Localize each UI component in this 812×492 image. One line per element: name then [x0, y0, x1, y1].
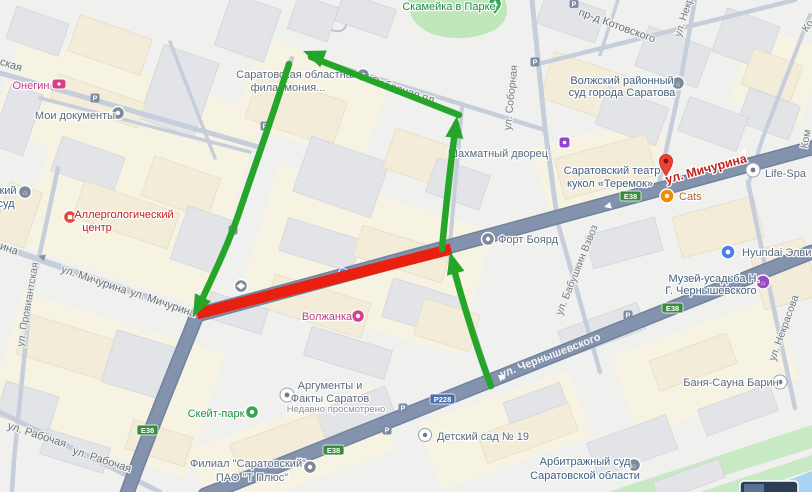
svg-text:кукол «Теремок»: кукол «Теремок»: [567, 178, 653, 190]
cafe-cats-icon[interactable]: [660, 189, 674, 203]
svg-text:Р228: Р228: [434, 395, 452, 404]
skatepark-icon[interactable]: [246, 406, 259, 419]
svg-text:Аллергологический: Аллергологический: [74, 209, 173, 221]
photo-thumbnail[interactable]: [740, 481, 798, 492]
svg-text:P: P: [93, 96, 98, 103]
svg-text:E38: E38: [624, 192, 637, 201]
poi-label-cats[interactable]: Cats: [679, 191, 702, 203]
svg-text:Саратовской области: Саратовской области: [530, 470, 640, 482]
poi-label-park-bench[interactable]: Скамейка в Парке: [402, 1, 495, 13]
parking-icon[interactable]: P: [531, 58, 540, 67]
svg-text:P: P: [572, 2, 577, 9]
svg-text:Г. Чернышевского: Г. Чернышевского: [665, 285, 756, 297]
svg-text:E38: E38: [666, 304, 679, 313]
svg-text:⌂: ⌂: [761, 280, 765, 287]
svg-text:Волжский районный: Волжский районный: [570, 75, 673, 87]
svg-text:центр: центр: [82, 222, 112, 234]
poi-label-court-clipped[interactable]: кий суд: [0, 185, 17, 210]
route-badge-e38: E38: [620, 191, 641, 201]
shop-volzhanka-icon[interactable]: [352, 310, 365, 323]
poi-label-museum-chernyshevsky[interactable]: Музей-усадьба Н. Г. Чернышевского: [665, 273, 759, 297]
fort-boyard-icon[interactable]: [482, 233, 495, 246]
svg-text:P: P: [626, 313, 631, 320]
poi-label-hyundai[interactable]: Hyundai Элвис П: [742, 247, 812, 259]
parking-icon[interactable]: P: [570, 0, 579, 9]
svg-text:кий: кий: [0, 185, 17, 197]
svg-text:филармония...: филармония...: [251, 82, 326, 94]
svg-text:суд: суд: [0, 198, 15, 210]
parking-icon[interactable]: P: [383, 426, 392, 435]
poi-label-moi-dokumenty[interactable]: Мои документы: [35, 110, 115, 122]
poi-label-chess-palace[interactable]: Шахматный дворец: [448, 148, 549, 160]
svg-text:P: P: [533, 60, 538, 67]
map-viewport[interactable]: ская ина ул. Мичурина ул. Мичурина ул. П…: [0, 0, 812, 492]
poi-label-skatepark[interactable]: Скейт-парк: [188, 408, 245, 420]
svg-text:ПАО "Т Плюс": ПАО "Т Плюс": [216, 472, 288, 484]
svg-text:Аргументы и: Аргументы и: [298, 380, 363, 392]
svg-text:Недавно просмотрено: Недавно просмотрено: [287, 404, 386, 415]
svg-text:Музей-усадьба Н.: Музей-усадьба Н.: [669, 273, 760, 285]
poi-label-sauna-barin[interactable]: Баня-Сауна Барин: [683, 377, 779, 389]
svg-text:суд города Саратова: суд города Саратова: [569, 87, 677, 99]
poi-label-volzhsky-court[interactable]: Волжский районный суд города Саратова: [569, 75, 677, 99]
poi-label-onegin[interactable]: Онегин: [13, 80, 50, 92]
parking-icon[interactable]: P: [624, 311, 633, 320]
route-badge-e38: E38: [137, 425, 158, 435]
route-badge-r228: Р228: [430, 394, 455, 404]
poi-label-teremok-theater[interactable]: Саратовский театр кукол «Теремок»: [564, 165, 661, 190]
courthouse-icon[interactable]: ⌂: [19, 186, 32, 199]
svg-text:E38: E38: [327, 446, 340, 455]
svg-text:Саратовский театр: Саратовский театр: [564, 165, 661, 177]
spa-icon[interactable]: [746, 163, 760, 177]
shopping-icon[interactable]: [559, 137, 570, 148]
car-dealer-icon[interactable]: [721, 245, 735, 259]
poi-label-kindergarten[interactable]: Детский сад № 19: [437, 431, 529, 443]
svg-text:⌂: ⌂: [23, 190, 27, 197]
poi-label-life-spa[interactable]: Life-Spa: [765, 168, 807, 180]
svg-text:P: P: [385, 428, 390, 435]
restaurant-onegin-icon[interactable]: [52, 79, 66, 89]
parking-icon[interactable]: P: [91, 94, 100, 103]
svg-text:⌂: ⌂: [632, 463, 636, 470]
svg-text:⌂: ⌂: [676, 81, 680, 88]
poi-label-volzhanka[interactable]: Волжанка: [302, 311, 353, 323]
svg-text:E38: E38: [141, 426, 154, 435]
svg-text:Арбитражный суд: Арбитражный суд: [540, 456, 631, 468]
kindergarten-icon[interactable]: [419, 429, 432, 442]
svg-text:Филиал "Саратовский": Филиал "Саратовский": [190, 458, 306, 470]
map-canvas[interactable]: ская ина ул. Мичурина ул. Мичурина ул. П…: [0, 0, 812, 492]
school-icon[interactable]: [235, 280, 248, 293]
street-label: Ком: [798, 129, 812, 150]
poi-label-fort-boyard[interactable]: Форт Боярд: [498, 234, 559, 246]
svg-text:P: P: [401, 406, 406, 413]
route-badge-e38: E38: [662, 303, 683, 313]
parking-icon[interactable]: P: [399, 404, 408, 413]
route-badge-e38: E38: [323, 445, 344, 455]
